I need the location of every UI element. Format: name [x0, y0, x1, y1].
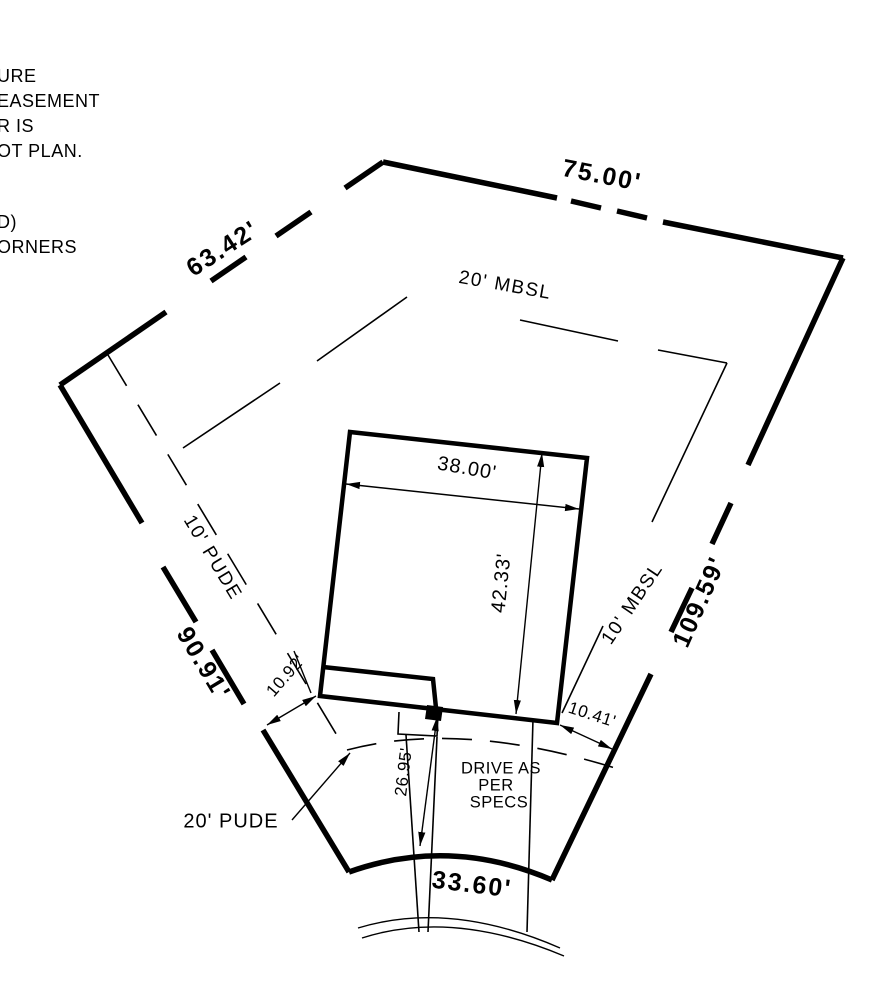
note-fragment: OT PLAN. — [0, 141, 83, 162]
entry-step — [425, 705, 443, 721]
dimension-lines — [267, 453, 612, 846]
plot-plan-drawing: URE EASEMENT R IS OT PLAN. D) ORNERS 75.… — [0, 0, 894, 990]
plot-plan-linework — [0, 0, 894, 990]
note-fragment: D) — [0, 212, 17, 233]
easement-label-front: 20' PUDE — [183, 811, 278, 834]
note-fragment: R IS — [0, 116, 34, 137]
drive-note-line: SPECS — [470, 794, 528, 813]
note-fragment: URE — [0, 66, 37, 87]
driveway-lines — [406, 719, 533, 932]
lot-boundary — [60, 162, 843, 880]
note-fragment: ORNERS — [0, 237, 77, 258]
street-edge-curves — [358, 918, 564, 956]
note-fragment: EASEMENT — [0, 91, 100, 112]
